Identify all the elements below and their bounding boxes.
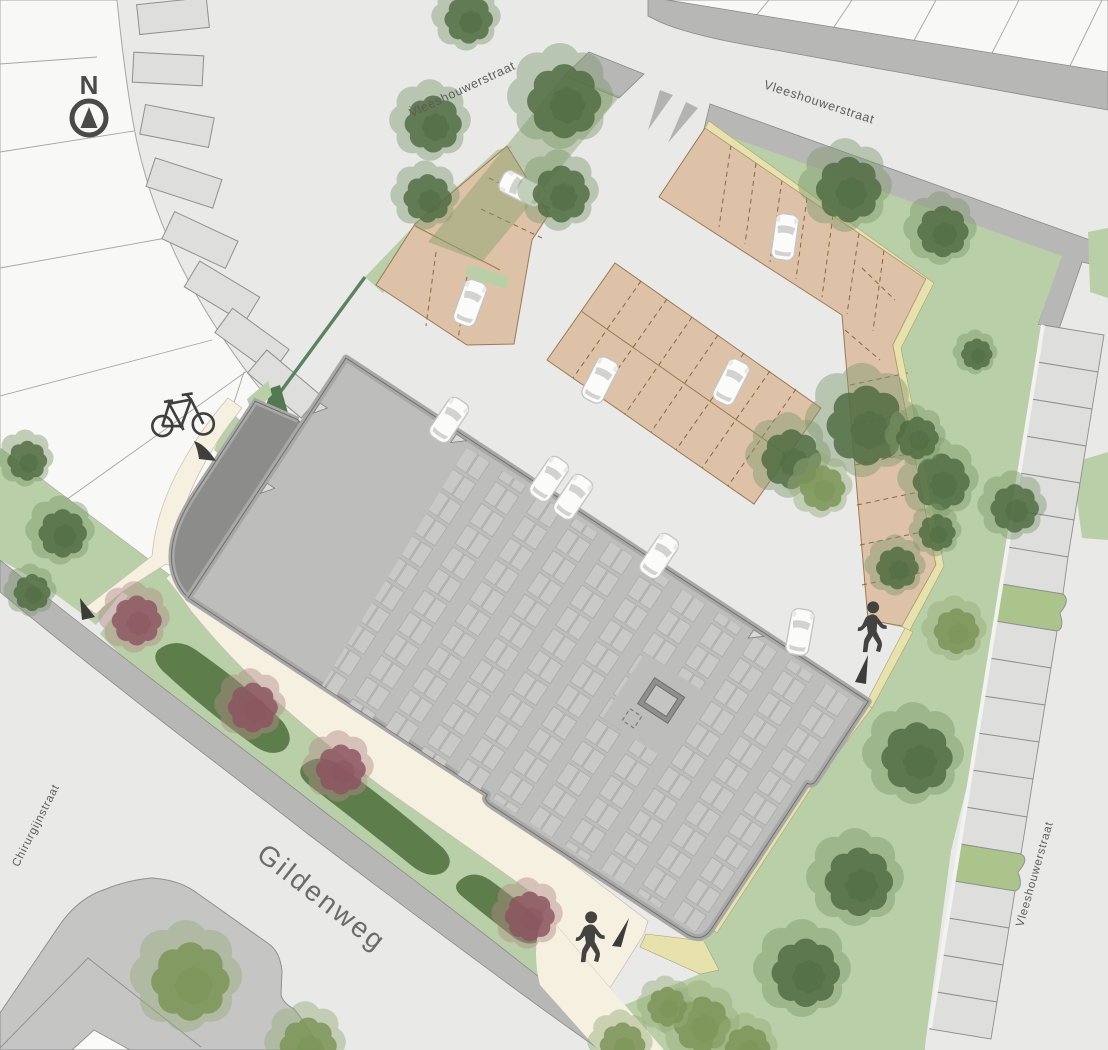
svg-text:N: N [80, 70, 99, 100]
